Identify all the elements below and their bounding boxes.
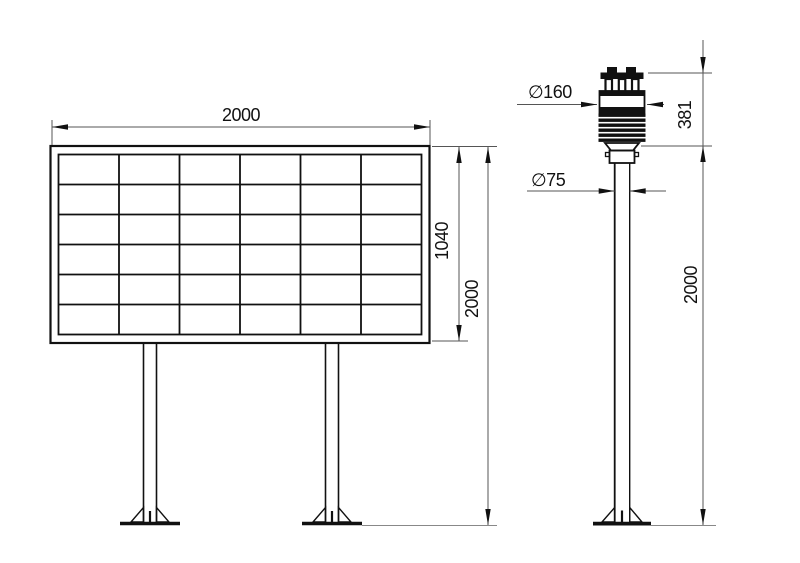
dim-arrow: [485, 147, 490, 163]
dim-sensor-height-label: 381: [675, 100, 695, 129]
technical-drawing: 2000 1040 2000: [0, 0, 800, 563]
sensor-taper: [605, 143, 639, 151]
dim-arrow: [456, 325, 461, 341]
board-grid: [59, 155, 422, 335]
dim-arrow: [700, 146, 705, 162]
display-board-view: [51, 146, 498, 526]
mounting-pole: [615, 163, 630, 522]
dim-pole-height: 2000: [681, 265, 706, 525]
dim-arrow: [700, 57, 705, 73]
board-foot-left: [120, 508, 180, 524]
dim-pole-diameter: ∅75: [527, 170, 666, 194]
dim-arrow: [414, 124, 430, 129]
foot-gusset: [131, 508, 144, 523]
foot-gusset: [602, 508, 615, 523]
foot-gusset: [630, 508, 642, 523]
dim-board-width-label: 2000: [222, 105, 261, 125]
dim-arrow: [700, 509, 705, 525]
dim-sensor-diameter-label: ∅160: [528, 82, 572, 102]
sensor-side-lug: [606, 153, 610, 157]
board-foot-right: [302, 508, 362, 524]
sensor-transducer-post: [632, 79, 639, 92]
dim-board-total-height-label: 2000: [462, 279, 482, 318]
sensor-transducer-post: [606, 79, 613, 92]
dim-sensor-height: 381: [641, 40, 712, 525]
dim-arrow: [647, 102, 663, 107]
sensor-band: [600, 91, 645, 96]
board-leg-right: [326, 343, 339, 522]
dim-pole-height-label: 2000: [681, 265, 701, 304]
pole-foot: [593, 508, 651, 524]
sensor-cap-knob: [607, 67, 617, 73]
dim-arrow: [485, 509, 490, 525]
sensor-cap-knob: [626, 67, 636, 73]
dim-arrow: [52, 124, 68, 129]
foot-gusset: [157, 508, 170, 523]
dim-board-total-height: 2000: [462, 147, 491, 525]
sensor-side-lug: [635, 153, 639, 157]
dim-board-width: 2000: [52, 105, 430, 145]
dim-arrow: [581, 102, 597, 107]
sensor-transducer-post: [619, 79, 626, 92]
technical-drawing-page: 2000 1040 2000: [0, 0, 800, 563]
dim-arrow: [456, 147, 461, 163]
dim-pole-diameter-label: ∅75: [531, 170, 566, 190]
dim-panel-height-label: 1040: [432, 221, 452, 260]
dim-arrow: [630, 188, 646, 193]
sensor-head: [599, 67, 646, 163]
foot-gusset: [313, 508, 326, 523]
dim-arrow: [599, 188, 615, 193]
foot-gusset: [339, 508, 352, 523]
sensor-connector: [610, 151, 635, 164]
sensor-band: [600, 107, 645, 113]
sensor-louvers: [599, 114, 646, 142]
board-leg-left: [144, 343, 157, 522]
